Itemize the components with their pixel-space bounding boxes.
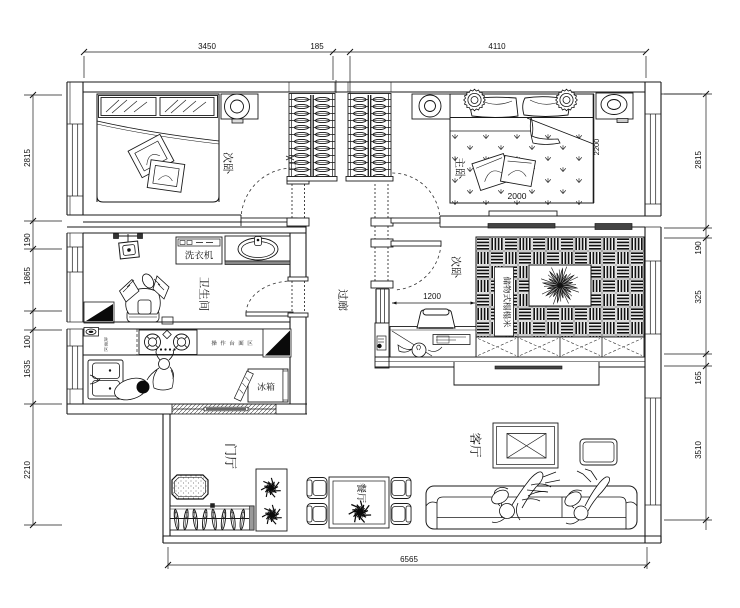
- svg-text:190: 190: [23, 233, 32, 247]
- svg-text:2815: 2815: [23, 149, 32, 167]
- svg-text:3510: 3510: [694, 441, 703, 459]
- svg-text:2815: 2815: [694, 151, 703, 169]
- svg-text:4110: 4110: [488, 42, 506, 51]
- svg-text:3450: 3450: [198, 42, 216, 51]
- svg-text:1635: 1635: [23, 360, 32, 378]
- svg-text:325: 325: [694, 290, 703, 304]
- svg-text:2210: 2210: [23, 461, 32, 479]
- svg-text:190: 190: [694, 241, 703, 255]
- svg-text:2200: 2200: [592, 139, 601, 156]
- svg-text:2000: 2000: [508, 191, 527, 201]
- svg-text:1865: 1865: [23, 267, 32, 285]
- svg-text:185: 185: [310, 42, 324, 51]
- svg-text:100: 100: [23, 335, 32, 349]
- svg-text:1200: 1200: [423, 292, 441, 301]
- svg-text:6565: 6565: [400, 555, 418, 564]
- svg-text:165: 165: [694, 371, 703, 385]
